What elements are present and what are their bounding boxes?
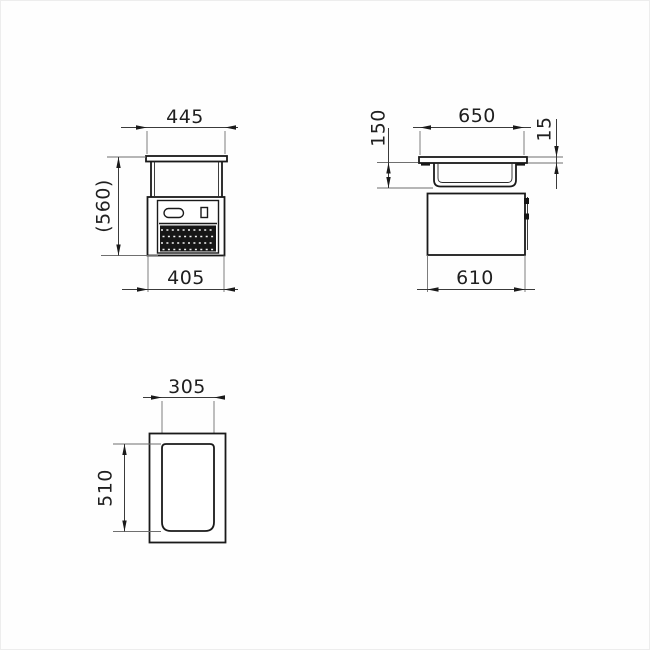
dim-label-opening-width: 305 bbox=[168, 376, 206, 398]
dim-arrow-icon bbox=[137, 287, 148, 291]
bracket-clamp bbox=[524, 214, 529, 220]
basin-outline-outer bbox=[434, 163, 516, 187]
flange-end-cap bbox=[421, 163, 430, 166]
dim-arrow-icon bbox=[224, 287, 235, 291]
dim-arrow-icon bbox=[136, 125, 147, 129]
dim-label-top-width-front: 445 bbox=[166, 106, 204, 128]
dim-arrow-icon bbox=[214, 395, 225, 399]
basin-outline-inner bbox=[438, 163, 512, 183]
dim-arrow-icon bbox=[554, 146, 558, 157]
plan-view: 305 510 bbox=[95, 376, 226, 543]
flange-outline bbox=[146, 156, 227, 162]
flange-end-cap bbox=[516, 163, 525, 166]
dim-arrow-icon bbox=[428, 287, 439, 291]
dim-arrow-icon bbox=[386, 177, 390, 188]
dim-label-depth-side: 150 bbox=[368, 109, 390, 147]
dim-label-top-width-side: 650 bbox=[458, 105, 496, 127]
body-outline-side bbox=[428, 194, 526, 256]
dim-label-height-front: (560) bbox=[93, 179, 115, 233]
dim-arrow-icon bbox=[554, 163, 558, 174]
dim-arrow-icon bbox=[122, 444, 126, 455]
dim-arrow-icon bbox=[386, 163, 390, 174]
flange-outline-side bbox=[419, 157, 527, 163]
drawing-svg: 445 (560) 405 bbox=[1, 1, 650, 650]
dim-arrow-icon bbox=[420, 125, 431, 129]
technical-drawing-canvas: 445 (560) 405 bbox=[0, 0, 650, 650]
dim-arrow-icon bbox=[151, 395, 162, 399]
dim-label-bottom-width-side: 610 bbox=[456, 267, 494, 289]
dim-arrow-icon bbox=[513, 125, 524, 129]
dim-arrow-icon bbox=[514, 287, 525, 291]
dim-label-bottom-width-front: 405 bbox=[167, 267, 205, 289]
front-view: 445 (560) 405 bbox=[93, 106, 238, 292]
bracket-clamp bbox=[524, 198, 529, 204]
dim-label-opening-length: 510 bbox=[95, 469, 117, 507]
dim-arrow-icon bbox=[225, 125, 236, 129]
dim-label-flange-thickness: 15 bbox=[534, 116, 556, 141]
dim-arrow-icon bbox=[116, 245, 120, 256]
dim-arrow-icon bbox=[122, 521, 126, 532]
side-view: 650 150 15 610 bbox=[368, 105, 563, 292]
dim-arrow-icon bbox=[116, 157, 120, 168]
